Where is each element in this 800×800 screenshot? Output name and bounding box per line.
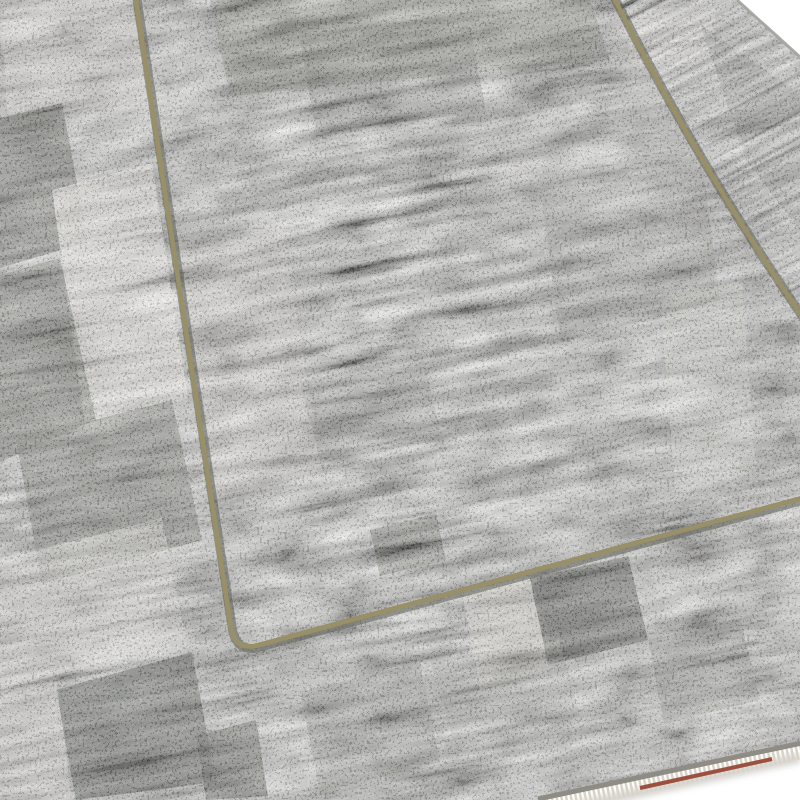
rug-photo-canvas xyxy=(0,0,800,800)
rug-body xyxy=(0,0,800,800)
rug-product-photo xyxy=(0,0,800,800)
